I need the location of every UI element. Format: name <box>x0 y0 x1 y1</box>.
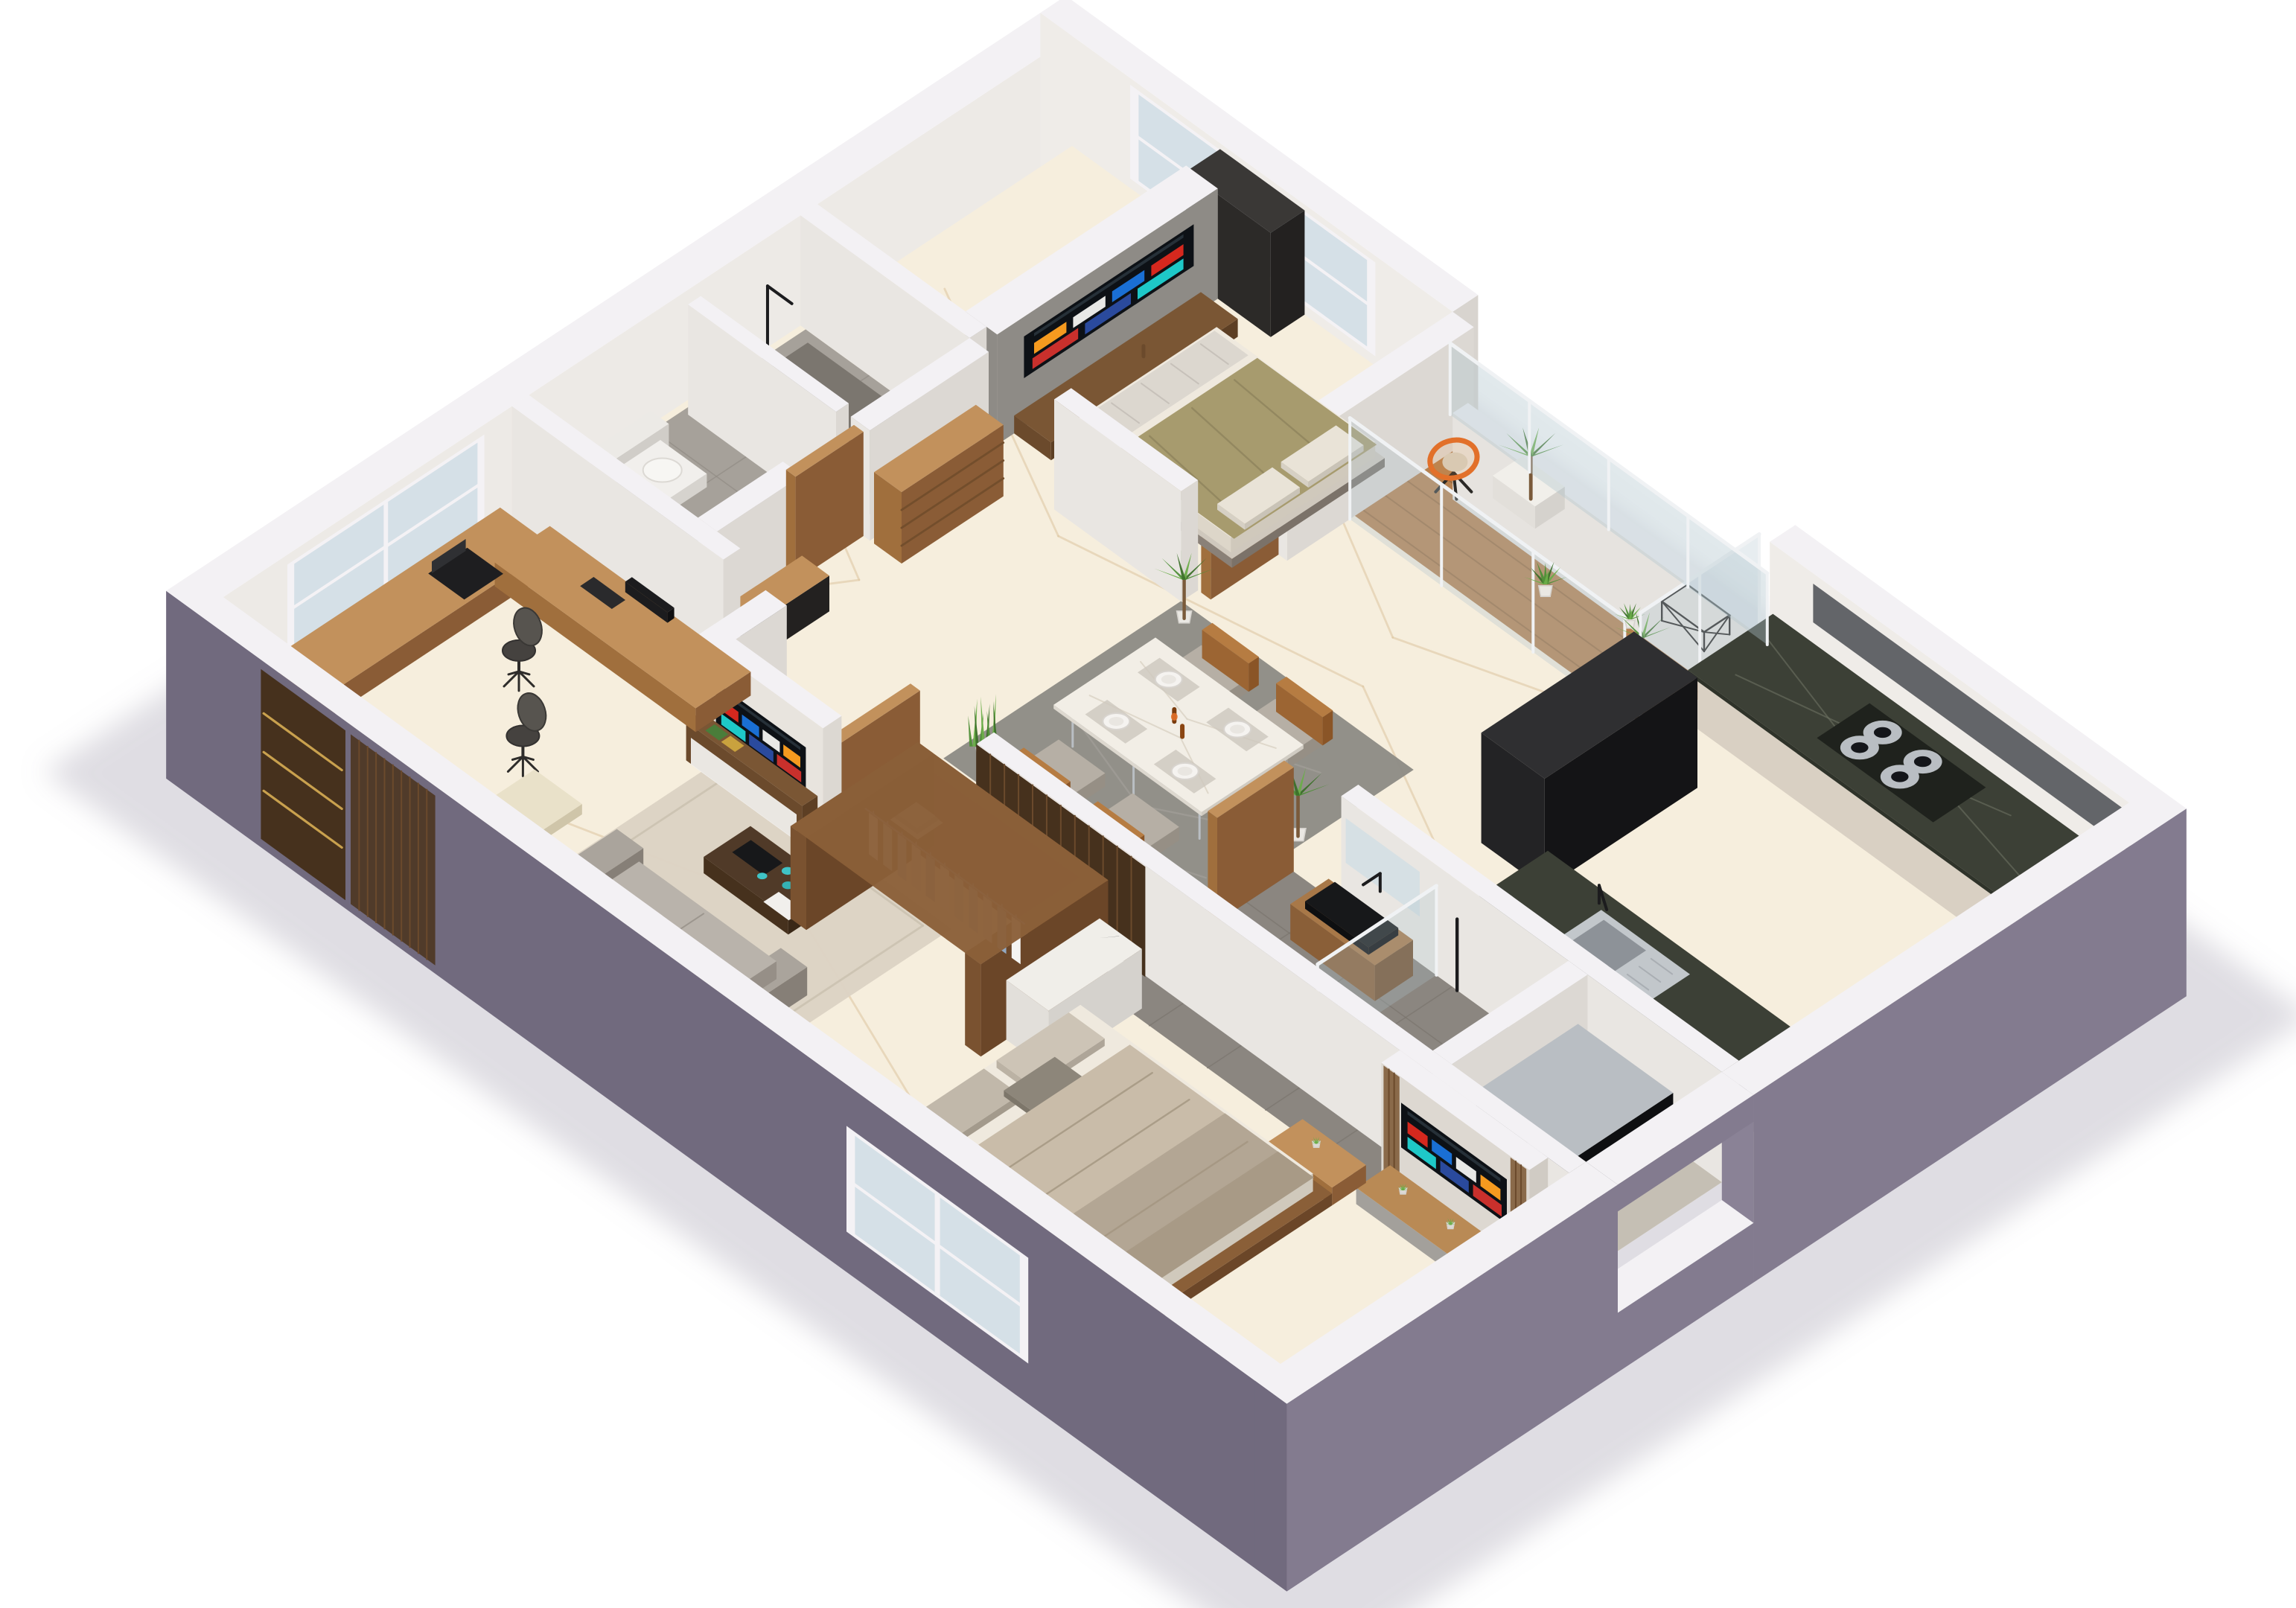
bottle-label <box>1171 713 1178 721</box>
floorplan-3d-render <box>0 0 2296 1608</box>
apartment-isometric-floorplan <box>0 0 2296 1608</box>
toilet-seat <box>643 459 682 482</box>
teal-candle-3 <box>757 872 768 879</box>
